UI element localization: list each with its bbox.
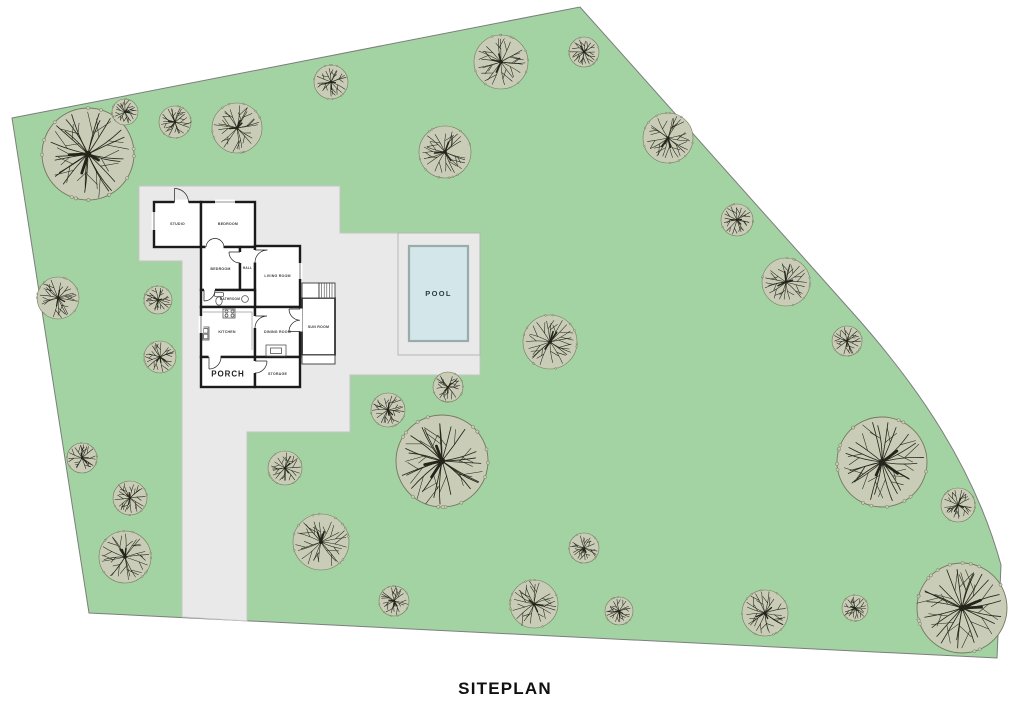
stove-burner: [231, 310, 234, 313]
siteplan-page: POOL: [0, 0, 1010, 704]
label-sunroom: SUN ROOM: [308, 325, 329, 329]
tree: [605, 596, 633, 625]
siteplan-drawing: POOL: [0, 0, 1010, 704]
page-title: SITEPLAN: [458, 679, 552, 698]
kitchen-sink-basin: [204, 329, 208, 334]
label-hall: HALL: [243, 266, 252, 270]
label-living: LIVING ROOM: [264, 274, 290, 278]
tree: [379, 585, 409, 616]
label-bathroom: BATHROOM: [220, 297, 240, 301]
tree: [721, 204, 754, 236]
tree: [419, 126, 471, 179]
tree: [842, 594, 868, 621]
toilet-tank: [215, 293, 224, 297]
label-studio: STUDIO: [170, 222, 185, 226]
tree: [144, 341, 176, 373]
kitchen-sink-basin: [204, 334, 208, 339]
fireplace-hearth: [271, 348, 282, 354]
tree: [36, 277, 79, 319]
pool-label: POOL: [425, 289, 451, 298]
tree: [568, 37, 599, 67]
label-porch: PORCH: [211, 370, 244, 379]
label-bedroom2: BEDROOM: [210, 267, 230, 271]
bathroom-sink: [242, 296, 249, 303]
stove-burner: [225, 314, 228, 317]
stove-burner: [225, 310, 228, 313]
label-bedroom1: BEDROOM: [218, 222, 238, 226]
label-storage: STORAGE: [268, 372, 288, 376]
sunroom-step: [302, 355, 335, 364]
stair-landing: [302, 283, 319, 298]
tree: [268, 451, 302, 485]
tree: [371, 393, 405, 427]
stove-burner: [231, 314, 234, 317]
tree: [941, 488, 976, 522]
label-kitchen: KITCHEN: [218, 330, 236, 334]
label-dining: DINING ROOM: [264, 330, 291, 334]
tree: [832, 326, 862, 357]
tree: [643, 112, 693, 164]
